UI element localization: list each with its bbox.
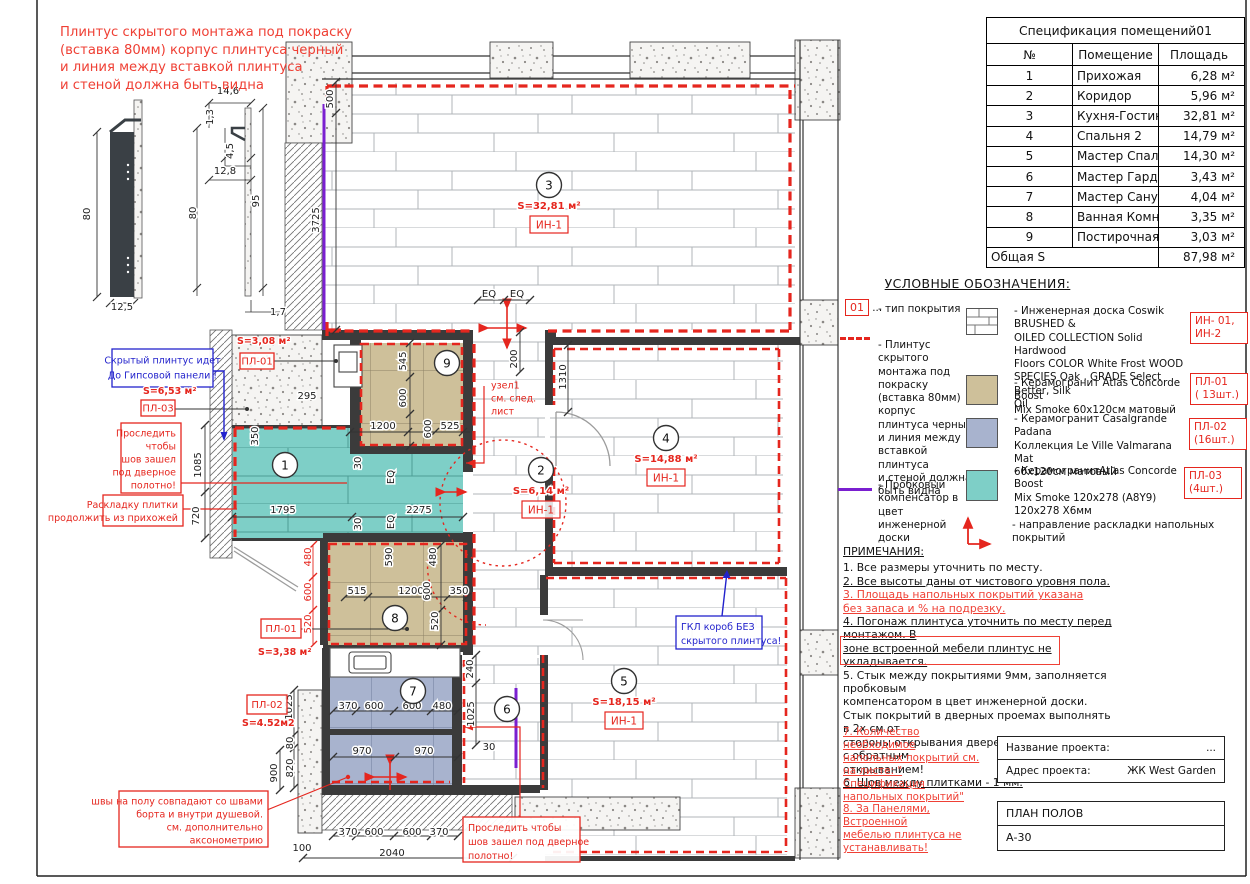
dim-label: 520 <box>430 611 441 630</box>
note-line: на листе: " Спецификация <box>843 765 983 791</box>
cell: 14,79 м² <box>1159 126 1245 146</box>
dim-label: 95 <box>251 195 262 208</box>
dim-label: 12,8 <box>214 166 236 177</box>
dim-label: 350 <box>250 426 261 445</box>
dim-label: 970 <box>352 746 371 757</box>
project-address-label: Адрес проекта: <box>1006 765 1091 777</box>
dim-label: 600 <box>423 419 434 438</box>
floor-plan <box>175 40 840 862</box>
cell: 4 <box>987 126 1073 146</box>
tag-pl02: ПЛ-02(16шт.) <box>1189 418 1247 450</box>
dim-label: 525 <box>440 421 459 432</box>
note-line: 3. Площадь напольных покрытий указана <box>843 588 1115 601</box>
note3-frame <box>840 636 1060 665</box>
svg-text:2: 2 <box>537 464 545 478</box>
svg-text:5: 5 <box>620 675 628 689</box>
area-label: S=3,08 м² <box>237 336 290 347</box>
room-specification-table: Спецификация помещений01 № Помещение Пло… <box>986 17 1245 268</box>
cell: 4,04 м² <box>1159 187 1245 207</box>
dim-label: 480 <box>432 701 451 712</box>
dim-label: 100 <box>292 843 311 854</box>
sheet-title: ПЛАН ПОЛОВ <box>998 802 1224 826</box>
project-name-label: Название проекта: <box>1006 742 1110 754</box>
svg-text:шов зашел под дверное: шов зашел под дверное <box>468 837 589 848</box>
dim-label: 3725 <box>311 207 322 232</box>
plinth-note-line: Плинтус скрытого монтажа под покраску <box>60 24 360 42</box>
cell: 3,35 м² <box>1159 207 1245 227</box>
legend-plinth-text: - Плинтус скрытогомонтажа под покраску(в… <box>878 339 978 499</box>
note-line: компенсатором в цвет инженерной доски. <box>843 695 1115 708</box>
dim-label: 4,5 <box>225 143 236 159</box>
svg-text:аксонометрию: аксонометрию <box>190 836 263 847</box>
total-value: 87,98 м² <box>1159 247 1245 267</box>
dim-label: EQ <box>386 470 397 484</box>
svg-text:ГКЛ короб БЕЗ: ГКЛ короб БЕЗ <box>681 622 755 633</box>
dim-label: 2040 <box>379 848 404 859</box>
cell: 3 <box>987 106 1073 126</box>
note-line: 7. Количество необходимое <box>843 726 983 752</box>
dim-label: 720 <box>191 506 202 525</box>
spec-table-title: Спецификация помещений01 <box>987 18 1245 44</box>
svg-text:6: 6 <box>503 703 511 717</box>
table-total-row: Общая S 87,98 м² <box>987 247 1245 267</box>
svg-text:ПЛ-02: ПЛ-02 <box>251 700 282 711</box>
note-line: напольных покрытий" <box>843 791 983 804</box>
notes-title: ПРИМЕЧАНИЯ: <box>843 545 1115 558</box>
dim-label: 820 <box>285 758 296 777</box>
legend-title: УСЛОВНЫЕ ОБОЗНАЧЕНИЯ: <box>845 276 1110 291</box>
cell: Мастер Спальня <box>1073 146 1159 166</box>
dim-label: 240 <box>465 659 476 678</box>
svg-text:см. след.: см. след. <box>491 394 536 405</box>
svg-text:полотно!: полотно! <box>131 481 176 492</box>
table-row: 6Мастер Гардеробная3,43 м² <box>987 166 1245 186</box>
svg-text:скрытого плинтуса!: скрытого плинтуса! <box>681 636 781 647</box>
plinth-detail-left <box>93 100 142 307</box>
room-area-label: S=6,14 м² <box>513 486 569 497</box>
dim-label: 1795 <box>270 505 295 516</box>
callout-follow1: Проследитьчтобышов зашелпод дверноеполот… <box>112 423 181 493</box>
room-area-label: S=14,88 м² <box>634 454 697 465</box>
tile3-swatch <box>966 470 998 501</box>
svg-text:см. дополнительно: см. дополнительно <box>167 823 264 834</box>
dim-label: 970 <box>414 746 433 757</box>
area-label: S=3,38 м² <box>258 647 311 658</box>
dim-label: 80 <box>82 208 93 221</box>
legend-direction-text: - направление раскладки напольных покрыт… <box>1012 519 1247 546</box>
table-row: 1Прихожая6,28 м² <box>987 66 1245 86</box>
cell: 1 <box>987 66 1073 86</box>
note-line: 2. Все высоты даны от чистового уровня п… <box>843 575 1115 588</box>
room-area-label: S=18,15 м² <box>592 697 655 708</box>
note-line: мебелью плинтуса не <box>843 829 983 842</box>
table-row: 3Кухня-Гостиная32,81 м² <box>987 106 1245 126</box>
sheet-info-block: ПЛАН ПОЛОВ А-30 <box>997 801 1225 851</box>
tag-pl01: ПЛ-01( 13шт.) <box>1190 373 1248 405</box>
dim-label: 600 <box>303 582 314 601</box>
area-label: S=6,53 м² <box>143 386 196 397</box>
legend-type-code: 01 ... <box>845 299 882 316</box>
tile2-swatch <box>966 418 998 448</box>
dim-label: 370 <box>338 827 357 838</box>
svg-text:Проследить чтобы: Проследить чтобы <box>468 823 561 834</box>
svg-text:ПЛ-01: ПЛ-01 <box>265 624 296 635</box>
room-marker-1: 1 <box>273 453 298 478</box>
plinth-note-line: (вставка 80мм) корпус плинтуса черный <box>60 42 360 60</box>
svg-text:До Гипсовой панели !: До Гипсовой панели ! <box>108 371 217 382</box>
notes-7-8-block: 7. Количество необходимое напольных покр… <box>843 726 983 855</box>
col-header-number: № <box>987 44 1073 66</box>
svg-text:швы на полу совпадают со швами: швы на полу совпадают со швами <box>91 797 263 808</box>
svg-text:ИН-1: ИН-1 <box>653 473 679 485</box>
plinth-note: Плинтус скрытого монтажа под покраску (в… <box>60 24 360 94</box>
table-row: 2Коридор5,96 м² <box>987 86 1245 106</box>
coating-code-ПЛ-01: ПЛ-01 <box>240 353 274 369</box>
dim-label: 1310 <box>558 364 569 389</box>
dim-label: 30 <box>353 518 364 531</box>
cell: Постирочная/Гардеробная <box>1073 227 1159 247</box>
legend-tile1-text: - Керамогранит Atlas Concorde BoostMix S… <box>1014 377 1186 417</box>
type-code-box: 01 <box>845 299 869 316</box>
dim-label: 480 <box>428 547 439 566</box>
svg-text:3: 3 <box>545 179 553 193</box>
cell: 3,43 м² <box>1159 166 1245 186</box>
table-row: 9Постирочная/Гардеробная3,03 м² <box>987 227 1245 247</box>
dim-label: 12,5 <box>111 302 133 313</box>
room-marker-7: 7 <box>401 679 426 704</box>
dim-label: 545 <box>398 351 409 370</box>
dim-label: 1200 <box>398 586 423 597</box>
dim-label: 900 <box>269 763 280 782</box>
table-row: 7Мастер Санузел4,04 м² <box>987 187 1245 207</box>
cork-sample-line <box>838 488 872 491</box>
dim-label: 1200 <box>370 421 395 432</box>
table-row: 4Спальня 214,79 м² <box>987 126 1245 146</box>
cell: Прихожая <box>1073 66 1159 86</box>
svg-text:Раскладку плитки: Раскладку плитки <box>87 500 178 511</box>
svg-text:ИН-1: ИН-1 <box>536 220 562 232</box>
cell: Мастер Санузел <box>1073 187 1159 207</box>
dim-label: 600 <box>364 701 383 712</box>
callout-layout: Раскладку плиткипродолжить из прихожей <box>48 495 183 526</box>
dim-label: EQ <box>510 289 524 300</box>
cell: 3,03 м² <box>1159 227 1245 247</box>
svg-text:ИН-1: ИН-1 <box>611 716 637 728</box>
dim-label: 480 <box>303 547 314 566</box>
dim-label: 1085 <box>193 452 204 477</box>
cell: 2 <box>987 86 1073 106</box>
dim-label: 1025 <box>466 701 477 726</box>
cell: Коридор <box>1073 86 1159 106</box>
cell: 8 <box>987 207 1073 227</box>
svg-text:Скрытый плинтус идет: Скрытый плинтус идет <box>104 356 221 367</box>
dim-label: EQ <box>386 515 397 529</box>
callout-hidden_plinth: Скрытый плинтус идетДо Гипсовой панели ! <box>104 349 221 387</box>
plinth-note-line: и линия между вставкой плинтуса <box>60 59 360 77</box>
cell: 9 <box>987 227 1073 247</box>
dim-label: 295 <box>297 391 316 402</box>
dim-label: 30 <box>353 457 364 470</box>
legend-tile3-text: - КерамогранитAtlas Concorde BoostMix Sm… <box>1014 465 1186 518</box>
coating-code-ПЛ-01: ПЛ-01 <box>261 619 301 638</box>
dim-label: 200 <box>509 349 520 368</box>
total-label: Общая S <box>987 247 1159 267</box>
dim-label: 600 <box>402 827 421 838</box>
svg-text:полотно!: полотно! <box>468 851 513 862</box>
svg-text:шов зашел: шов зашел <box>121 455 176 466</box>
dim-label: 1,3 <box>205 109 216 125</box>
svg-text:продолжить из прихожей: продолжить из прихожей <box>48 513 178 524</box>
plinth-detail-right <box>193 99 280 312</box>
svg-text:ПЛ-03: ПЛ-03 <box>142 404 173 415</box>
dim-label: 1,7 <box>270 307 286 318</box>
tile1-swatch <box>966 375 998 405</box>
legend-type-text: - тип покрытия <box>878 303 961 316</box>
cell: 14,30 м² <box>1159 146 1245 166</box>
cell: Ванная Комната <box>1073 207 1159 227</box>
note-line: без запаса и % на подрезку. <box>843 602 1115 615</box>
room-marker-8: 8 <box>383 606 408 631</box>
svg-text:4: 4 <box>662 432 670 446</box>
project-address-value: ЖК West Garden <box>1127 765 1216 777</box>
dim-label: 2275 <box>406 505 431 516</box>
callout-seams: швы на полу совпадают со швамиборта и вн… <box>91 791 268 847</box>
cell: 7 <box>987 187 1073 207</box>
dim-label: 80 <box>285 737 296 750</box>
dim-label: EQ <box>482 289 496 300</box>
tag-in01: ИН- 01,ИН-2 <box>1190 312 1248 344</box>
cell: Мастер Гардеробная <box>1073 166 1159 186</box>
dim-label: 370 <box>338 701 357 712</box>
svg-text:лист: лист <box>491 407 514 418</box>
sheet-number: А-30 <box>998 826 1224 849</box>
cell: Спальня 2 <box>1073 126 1159 146</box>
svg-text:8: 8 <box>391 612 399 626</box>
cell: Кухня-Гостиная <box>1073 106 1159 126</box>
svg-text:чтобы: чтобы <box>146 442 176 453</box>
room-area-label: S=32,81 м² <box>517 201 580 212</box>
dim-label: 520 <box>303 614 314 633</box>
dashed-plinth-sample <box>840 337 870 340</box>
dim-label: 370 <box>429 827 448 838</box>
svg-text:1: 1 <box>281 459 289 473</box>
dim-label: 30 <box>483 742 496 753</box>
cell: 32,81 м² <box>1159 106 1245 126</box>
svg-text:9: 9 <box>443 357 451 371</box>
project-name-value: ... <box>1206 742 1216 754</box>
note-line: напольных покрытий см. <box>843 752 983 765</box>
svg-text:7: 7 <box>409 685 417 699</box>
wood-swatch <box>966 308 998 335</box>
note-line: 5. Стык между покрытиями 9мм, заполняетс… <box>843 669 1115 696</box>
dim-label: 590 <box>384 547 395 566</box>
coating-code-ПЛ-03: ПЛ-03 <box>141 400 175 416</box>
project-info-block: Название проекта: ... Адрес проекта: ЖК … <box>997 736 1225 783</box>
note-line: устанавливать! <box>843 842 983 855</box>
dim-label: 600 <box>398 388 409 407</box>
svg-text:Проследить: Проследить <box>116 429 176 440</box>
dim-label: 80 <box>188 207 199 220</box>
cell: 5 <box>987 146 1073 166</box>
coating-code-ПЛ-02: ПЛ-02 <box>247 695 287 714</box>
svg-text:борта и внутри душевой.: борта и внутри душевой. <box>136 810 263 821</box>
note-line: 1. Все размеры уточнить по месту. <box>843 561 1115 574</box>
cell: 6,28 м² <box>1159 66 1245 86</box>
room-marker-6: 6 <box>495 697 520 722</box>
plinth-note-line: и стеной должна быть видна <box>60 77 360 95</box>
callout-follow2: Проследить чтобышов зашел под дверноепол… <box>463 817 589 862</box>
area-label: S=4.52м2 <box>242 718 295 729</box>
cell: 6 <box>987 166 1073 186</box>
table-row: 5Мастер Спальня14,30 м² <box>987 146 1245 166</box>
dim-label: 515 <box>347 586 366 597</box>
svg-text:под дверное: под дверное <box>112 468 176 479</box>
svg-text:узел1: узел1 <box>491 381 520 392</box>
dim-label: 600 <box>422 581 433 600</box>
svg-text:ПЛ-01: ПЛ-01 <box>241 357 272 368</box>
note-line: 8. За Панелями, Встроенной <box>843 803 983 829</box>
col-header-area: Площадь <box>1159 44 1245 66</box>
col-header-room: Помещение <box>1073 44 1159 66</box>
dim-label: 600 <box>364 827 383 838</box>
room-marker-9: 9 <box>435 351 460 376</box>
tag-pl03: ПЛ-03(4шт.) <box>1184 467 1242 499</box>
svg-text:ИН-1: ИН-1 <box>528 505 554 517</box>
cell: 5,96 м² <box>1159 86 1245 106</box>
dim-label: 350 <box>449 586 468 597</box>
table-row: 8Ванная Комната3,35 м² <box>987 207 1245 227</box>
